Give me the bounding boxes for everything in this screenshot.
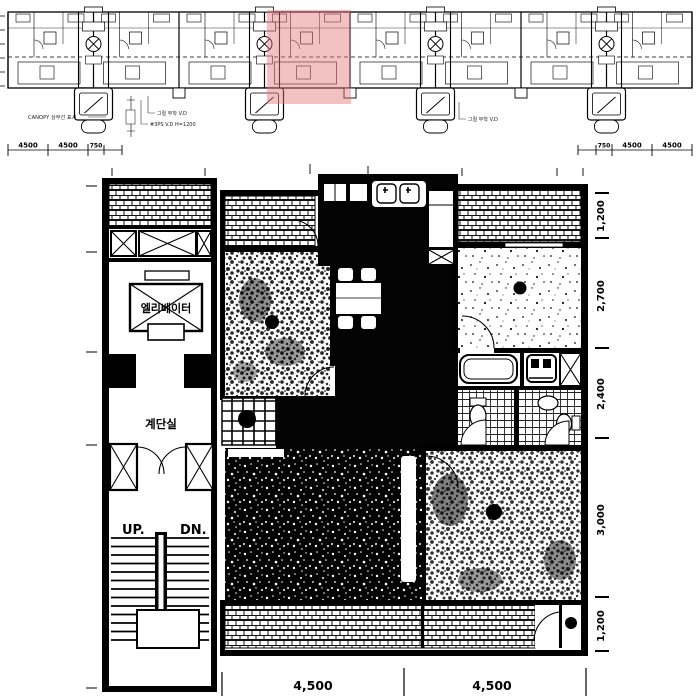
vent-note-1: 그릴 부착 V.D (157, 110, 187, 117)
strip-dim-left-1: 4500 (18, 142, 38, 150)
duct-shaft-boxes (109, 229, 211, 262)
foyer-column-dot (238, 410, 256, 428)
scanned-floor-plan-sheet: 4500 4500 750 750 4500 4500 CANOPY 상부선 표… (0, 0, 700, 698)
drawing-svg: 4500 4500 750 750 4500 4500 CANOPY 상부선 표… (0, 0, 700, 698)
living-room (225, 448, 422, 600)
window-sill (505, 243, 563, 247)
dim-right-4: 3,000 (596, 504, 607, 536)
hall-door-arc-right (159, 447, 186, 474)
plan-bottom-dimensions: 4,500 4,500 (222, 668, 586, 696)
strip-dim-right-2: 4500 (622, 142, 642, 150)
balcony-top-middle (225, 196, 315, 246)
dim-right-5: 1,200 (596, 610, 607, 642)
wash-basin (538, 396, 558, 410)
unit-floor-plan: 엘리베이터 계단실 UP. DN. (86, 164, 609, 696)
bedroom-2 (453, 184, 588, 353)
balcony-top-right (458, 190, 581, 242)
strip-dim-right-3: 4500 (662, 142, 682, 150)
plan-right-dimensions: 1,200 2,700 2,400 3,000 1,200 (595, 193, 609, 651)
dining-table (336, 283, 381, 314)
wall (225, 246, 318, 252)
refrigerator (428, 190, 454, 248)
vent-note-2: #3PS V.D H=1200 (150, 122, 196, 128)
bedroom-1 (225, 252, 335, 401)
dim-right-3: 2,400 (596, 378, 607, 410)
strip-dim-left-2: 4500 (58, 142, 78, 150)
building-overview-strip: 4500 4500 750 750 4500 4500 CANOPY 상부선 표… (0, 7, 692, 156)
strip-dim-right-1: 750 (598, 143, 611, 150)
dining-chair (338, 268, 353, 281)
selected-unit-highlight (267, 10, 351, 104)
dim-right-2: 2,700 (596, 280, 607, 312)
staircase-label: 계단실 (145, 417, 177, 431)
staircase: UP. DN. (111, 523, 209, 648)
dining-chair (361, 316, 376, 329)
drain-dot (565, 617, 577, 629)
ceiling-light-dot (265, 315, 279, 329)
ceiling-light-dot (514, 282, 527, 295)
canopy-note: CANOPY 상부선 표시 (28, 113, 77, 121)
dim-bottom-2: 4,500 (472, 678, 512, 693)
dining-chair (361, 268, 376, 281)
hall-door-arc-left (137, 447, 164, 474)
elevator-room: 엘리베이터 (109, 262, 211, 388)
vent-note-3: 그릴 부착 V.D (468, 116, 498, 123)
stair-landing (137, 610, 199, 648)
stair-hall: 계단실 (110, 417, 213, 490)
kitchen (318, 174, 458, 266)
dim-bottom-1: 4,500 (293, 678, 333, 693)
core-top-balcony (109, 184, 211, 226)
balcony-bottom (225, 605, 581, 648)
stair-down-label: DN. (180, 523, 207, 538)
strip-dim-left-3: 750 (90, 143, 103, 150)
dim-right-1: 1,200 (596, 200, 607, 232)
sofa (401, 456, 416, 582)
entry-foyer (222, 398, 276, 445)
wall (109, 226, 211, 229)
stair-up-label: UP. (122, 523, 145, 538)
dining-chair (338, 316, 353, 329)
elevator-label: 엘리베이터 (141, 301, 192, 315)
ceiling-light-dot (486, 504, 502, 520)
kitchen-cabinet (350, 184, 367, 201)
